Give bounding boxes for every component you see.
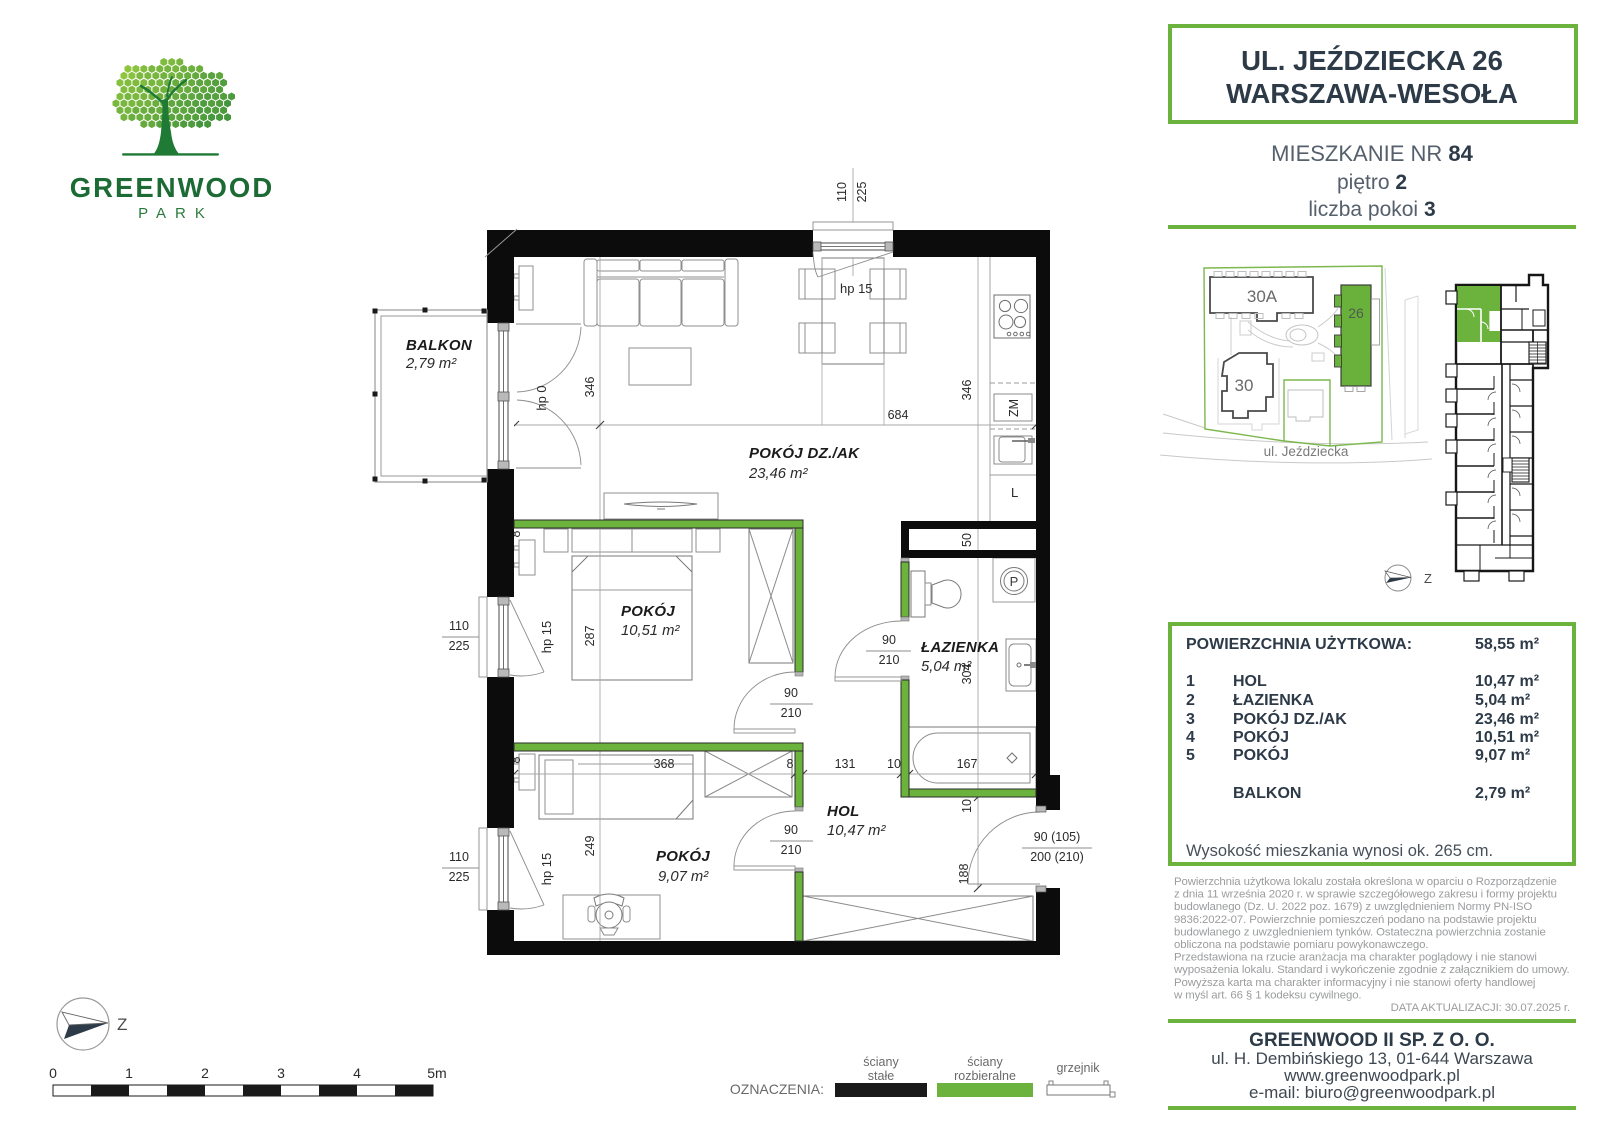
svg-text:POKÓJ: POKÓJ bbox=[621, 602, 675, 620]
svg-text:10: 10 bbox=[887, 757, 901, 771]
svg-text:liczba pokoi 3: liczba pokoi 3 bbox=[1308, 198, 1435, 221]
svg-text:POWIERZCHNIA UŻYTKOWA:: POWIERZCHNIA UŻYTKOWA: bbox=[1186, 635, 1412, 653]
svg-text:WARSZAWA-WESOŁA: WARSZAWA-WESOŁA bbox=[1226, 78, 1518, 109]
svg-text:POKÓJ DZ./AK: POKÓJ DZ./AK bbox=[749, 444, 860, 462]
svg-text:210: 210 bbox=[879, 653, 900, 667]
svg-text:3: 3 bbox=[1186, 711, 1195, 728]
svg-text:225: 225 bbox=[855, 182, 869, 203]
svg-text:2,79 m²: 2,79 m² bbox=[405, 356, 457, 372]
svg-text:PARK: PARK bbox=[138, 205, 214, 222]
svg-text:50: 50 bbox=[960, 533, 974, 547]
svg-text:346: 346 bbox=[583, 377, 597, 398]
svg-text:Z: Z bbox=[1424, 571, 1432, 586]
svg-text:10,51 m²: 10,51 m² bbox=[621, 623, 680, 639]
svg-text:ul. Jeździecka: ul. Jeździecka bbox=[1264, 444, 1349, 459]
svg-text:10,51 m²: 10,51 m² bbox=[1475, 729, 1539, 746]
svg-text:ŁAZIENKA: ŁAZIENKA bbox=[1233, 692, 1314, 709]
svg-text:58,55 m²: 58,55 m² bbox=[1475, 636, 1539, 653]
svg-text:2,79 m²: 2,79 m² bbox=[1475, 785, 1530, 802]
svg-text:5m: 5m bbox=[427, 1065, 446, 1081]
svg-text:2: 2 bbox=[201, 1065, 209, 1081]
svg-text:BALKON: BALKON bbox=[1233, 785, 1301, 802]
svg-text:225: 225 bbox=[449, 870, 470, 884]
svg-text:HOL: HOL bbox=[1233, 673, 1267, 690]
svg-text:4: 4 bbox=[353, 1065, 361, 1081]
svg-text:90: 90 bbox=[882, 633, 896, 647]
svg-text:ZM: ZM bbox=[1007, 399, 1021, 417]
svg-text:L: L bbox=[1011, 485, 1018, 500]
svg-text:684: 684 bbox=[888, 408, 909, 422]
svg-text:OZNACZENIA:: OZNACZENIA: bbox=[730, 1081, 824, 1097]
svg-text:10: 10 bbox=[960, 799, 974, 813]
svg-text:budowlanego (Dz. U. 2022 poz.: budowlanego (Dz. U. 2022 poz. 1679) z uw… bbox=[1174, 901, 1532, 913]
svg-text:e-mail: biuro@greenwoodpark.pl: e-mail: biuro@greenwoodpark.pl bbox=[1249, 1083, 1495, 1102]
svg-text:225: 225 bbox=[449, 639, 470, 653]
svg-text:Przedstawiona na rzucie aranża: Przedstawiona na rzucie aranżacja ma cha… bbox=[1174, 952, 1537, 964]
svg-text:stałe: stałe bbox=[868, 1069, 894, 1083]
svg-text:30: 30 bbox=[1235, 376, 1254, 395]
svg-text:200 (210): 200 (210) bbox=[1030, 850, 1084, 864]
svg-text:10,47 m²: 10,47 m² bbox=[1475, 673, 1539, 690]
svg-text:ŁAZIENKA: ŁAZIENKA bbox=[920, 639, 999, 656]
svg-text:DATA AKTUALIZACJI: 30.07.2025: DATA AKTUALIZACJI: 30.07.2025 r. bbox=[1391, 1002, 1570, 1014]
svg-text:POKÓJ: POKÓJ bbox=[1233, 745, 1289, 764]
svg-text:ściany: ściany bbox=[863, 1055, 899, 1069]
svg-text:w myśl art. 66 § 1 kodeksu cyw: w myśl art. 66 § 1 kodeksu cywilnego. bbox=[1173, 989, 1362, 1001]
svg-text:hp 15: hp 15 bbox=[840, 281, 873, 296]
svg-text:hp 0: hp 0 bbox=[534, 385, 549, 410]
svg-text:5,04 m²: 5,04 m² bbox=[1475, 692, 1530, 709]
svg-text:1: 1 bbox=[1186, 673, 1195, 690]
svg-text:POKÓJ DZ./AK: POKÓJ DZ./AK bbox=[1233, 709, 1347, 728]
svg-text:HOL: HOL bbox=[827, 803, 860, 820]
svg-text:hp 15: hp 15 bbox=[539, 621, 554, 654]
svg-text:hp 15: hp 15 bbox=[539, 853, 554, 886]
svg-text:90 (105): 90 (105) bbox=[1034, 830, 1081, 844]
svg-text:GREENWOOD II SP. Z O. O.: GREENWOOD II SP. Z O. O. bbox=[1249, 1030, 1495, 1051]
svg-text:23,46 m²: 23,46 m² bbox=[748, 466, 808, 482]
svg-text:z dnia 11 września 2020 r. w s: z dnia 11 września 2020 r. w sprawie szc… bbox=[1174, 889, 1557, 901]
svg-text:10,47 m²: 10,47 m² bbox=[827, 823, 886, 839]
svg-text:2: 2 bbox=[1186, 692, 1195, 709]
svg-text:30A: 30A bbox=[1247, 287, 1278, 306]
svg-text:POKÓJ: POKÓJ bbox=[1233, 727, 1289, 746]
svg-text:131: 131 bbox=[835, 757, 856, 771]
svg-text:210: 210 bbox=[781, 706, 802, 720]
svg-text:rozbieralne: rozbieralne bbox=[954, 1069, 1016, 1083]
svg-text:167: 167 bbox=[957, 757, 978, 771]
svg-text:5,04 m²: 5,04 m² bbox=[921, 659, 972, 675]
svg-text:9836:2022-07. Powierzchnie pom: 9836:2022-07. Powierzchnie pomieszczeń p… bbox=[1174, 914, 1536, 926]
svg-text:368: 368 bbox=[654, 757, 675, 771]
svg-text:BALKON: BALKON bbox=[406, 337, 473, 354]
svg-text:26: 26 bbox=[1348, 305, 1364, 321]
svg-text:9,07 m²: 9,07 m² bbox=[658, 869, 709, 885]
svg-text:budowlanego z uwzglednieniem t: budowlanego z uwzglednieniem tynków. Ost… bbox=[1174, 926, 1546, 938]
svg-text:ściany: ściany bbox=[967, 1055, 1003, 1069]
svg-text:P: P bbox=[1010, 574, 1019, 589]
svg-text:POKÓJ: POKÓJ bbox=[656, 847, 710, 865]
svg-text:110: 110 bbox=[449, 619, 469, 633]
svg-text:8: 8 bbox=[787, 757, 794, 771]
svg-text:obliczona na podstawie pomiaru: obliczona na podstawie pomiaru powykonaw… bbox=[1174, 939, 1428, 951]
svg-text:23,46 m²: 23,46 m² bbox=[1475, 711, 1539, 728]
svg-text:0: 0 bbox=[49, 1065, 57, 1081]
svg-text:90: 90 bbox=[784, 686, 798, 700]
svg-text:piętro 2: piętro 2 bbox=[1337, 171, 1407, 194]
svg-text:110: 110 bbox=[449, 850, 469, 864]
svg-text:grzejnik: grzejnik bbox=[1056, 1061, 1100, 1075]
svg-text:346: 346 bbox=[960, 380, 974, 401]
svg-text:1: 1 bbox=[125, 1065, 133, 1081]
svg-text:MIESZKANIE NR 84: MIESZKANIE NR 84 bbox=[1271, 141, 1473, 166]
svg-text:UL. JEŹDZIECKA 26: UL. JEŹDZIECKA 26 bbox=[1241, 45, 1503, 76]
svg-text:wyposażenia lokalu. Standard i: wyposażenia lokalu. Standard i wykończen… bbox=[1173, 964, 1570, 976]
svg-text:5: 5 bbox=[1186, 747, 1195, 764]
svg-text:110: 110 bbox=[835, 182, 849, 202]
svg-text:Powyższa karta ma charakter in: Powyższa karta ma charakter informacyjny… bbox=[1174, 977, 1535, 989]
svg-text:4: 4 bbox=[1186, 729, 1195, 746]
svg-text:3: 3 bbox=[277, 1065, 285, 1081]
svg-text:GREENWOOD: GREENWOOD bbox=[70, 172, 274, 203]
svg-text:9,07 m²: 9,07 m² bbox=[1475, 747, 1530, 764]
svg-text:Powierzchnia użytkowa lokalu z: Powierzchnia użytkowa lokalu została okr… bbox=[1174, 876, 1557, 888]
svg-text:287: 287 bbox=[583, 626, 597, 647]
svg-text:Z: Z bbox=[117, 1015, 127, 1034]
svg-text:249: 249 bbox=[583, 836, 597, 857]
svg-text:Wysokość mieszkania wynosi ok.: Wysokość mieszkania wynosi ok. 265 cm. bbox=[1186, 842, 1493, 860]
svg-text:90: 90 bbox=[784, 823, 798, 837]
svg-text:210: 210 bbox=[781, 843, 802, 857]
